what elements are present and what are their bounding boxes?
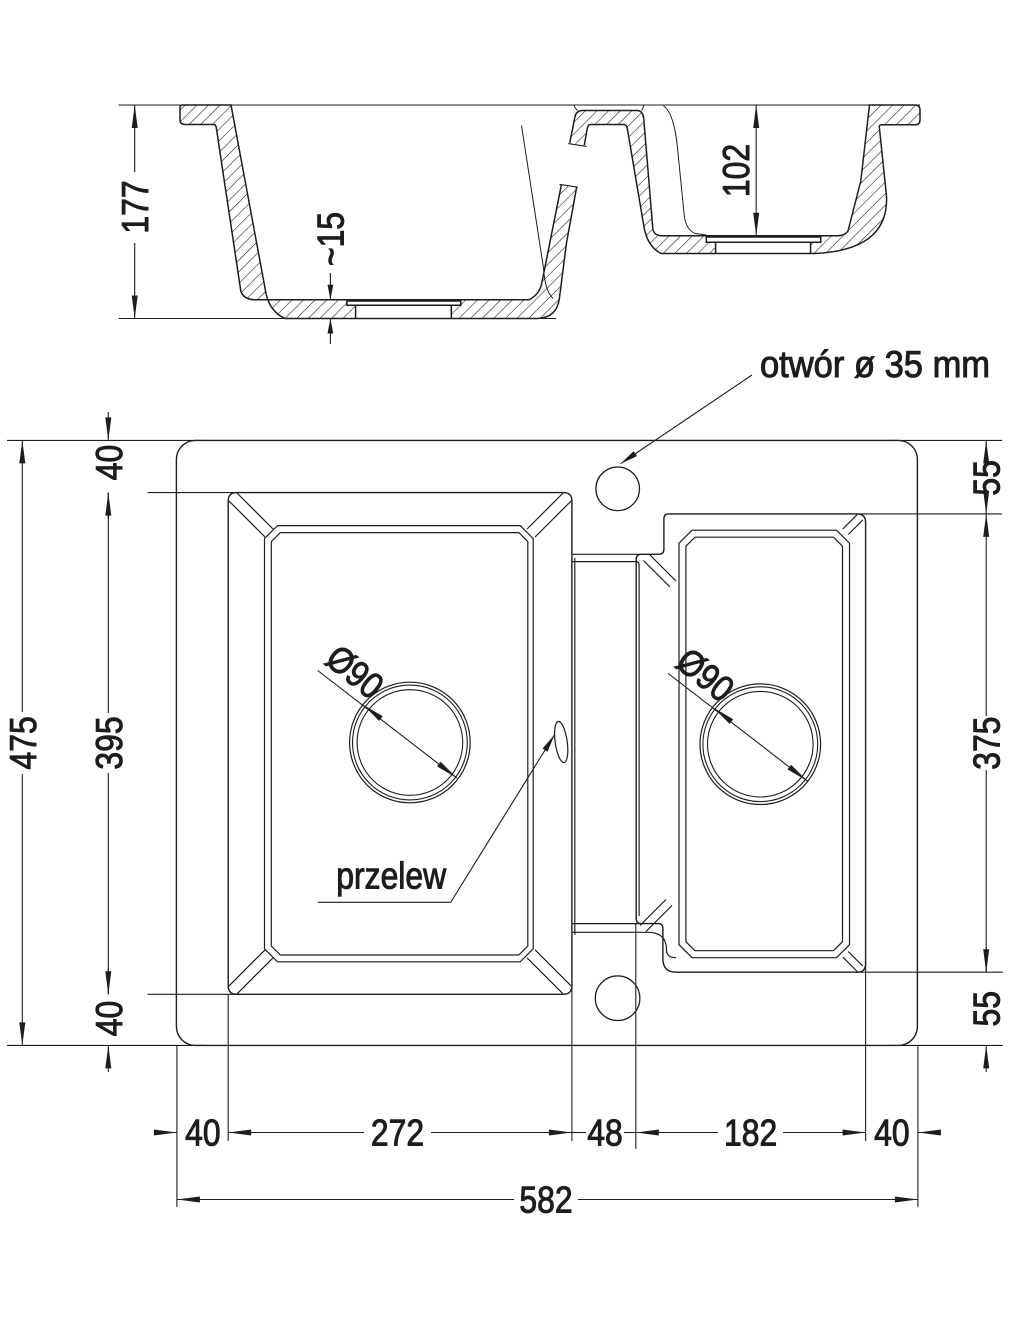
svg-text:102: 102: [715, 144, 757, 197]
svg-text:582: 582: [519, 1179, 572, 1221]
svg-text:otwór ø 35 mm: otwór ø 35 mm: [760, 343, 990, 385]
svg-text:przelew: przelew: [336, 855, 447, 897]
svg-text:40: 40: [88, 445, 130, 480]
svg-text:55: 55: [966, 991, 1008, 1026]
svg-text:375: 375: [966, 717, 1008, 770]
svg-text:55: 55: [966, 460, 1008, 495]
svg-text:475: 475: [2, 716, 44, 769]
svg-text:272: 272: [371, 1112, 424, 1154]
svg-text:395: 395: [88, 716, 130, 769]
svg-text:48: 48: [587, 1112, 622, 1154]
svg-text:40: 40: [185, 1112, 220, 1154]
svg-text:182: 182: [724, 1112, 777, 1154]
svg-text:40: 40: [88, 1001, 130, 1036]
svg-text:~15: ~15: [309, 212, 351, 266]
svg-text:40: 40: [874, 1112, 909, 1154]
svg-text:177: 177: [114, 180, 156, 233]
